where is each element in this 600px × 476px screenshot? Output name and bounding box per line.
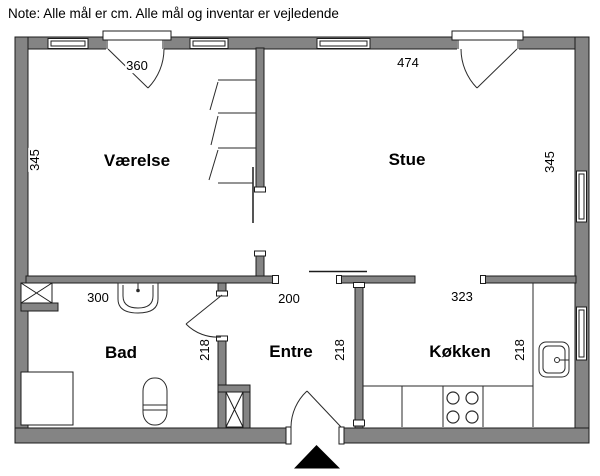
dim-stue-width: 474 [396, 56, 420, 70]
floor-plan: Note: Alle mål er cm. Alle mål og invent… [0, 0, 600, 476]
room-label-stue: Stue [389, 150, 426, 170]
shower [21, 372, 73, 425]
stove [447, 392, 478, 423]
door-openings [106, 36, 519, 444]
entrance-door [291, 391, 341, 427]
window-vaerelse-left [48, 39, 88, 49]
door-bad [186, 295, 222, 337]
washbasin [118, 283, 158, 313]
wardrobe [209, 80, 256, 183]
room-label-koekken: Køkken [429, 342, 490, 362]
dim-vaerelse-width: 360 [125, 59, 149, 73]
interior-walls [21, 48, 576, 428]
dim-bad-width: 300 [86, 291, 110, 305]
window-stue-top [317, 39, 370, 49]
exterior-walls [15, 37, 589, 443]
dim-entre-width: 200 [277, 292, 301, 306]
ventilation-shaft-entre [226, 392, 243, 427]
dim-bad-depth: 218 [198, 338, 212, 362]
dim-vaerelse-depth: 345 [28, 148, 42, 172]
window-koekken-right [577, 307, 587, 360]
balcony-door-stue [452, 31, 523, 88]
window-stue-right [577, 171, 587, 222]
room-label-bad: Bad [105, 343, 137, 363]
plan-drawing [0, 0, 600, 476]
kitchen-sink [539, 342, 569, 377]
wall-end-caps [217, 187, 486, 426]
dim-koekken-depth: 218 [513, 338, 527, 362]
dim-entre-depth: 218 [333, 338, 347, 362]
entrance-arrow-icon [294, 445, 340, 469]
ventilation-shaft-bad [21, 283, 52, 303]
toilet [143, 378, 167, 425]
window-vaerelse-right [190, 39, 228, 49]
room-label-entre: Entre [269, 342, 312, 362]
dim-koekken-width: 323 [450, 290, 474, 304]
room-label-vaerelse: Værelse [104, 151, 170, 171]
dim-stue-depth: 345 [543, 150, 557, 174]
